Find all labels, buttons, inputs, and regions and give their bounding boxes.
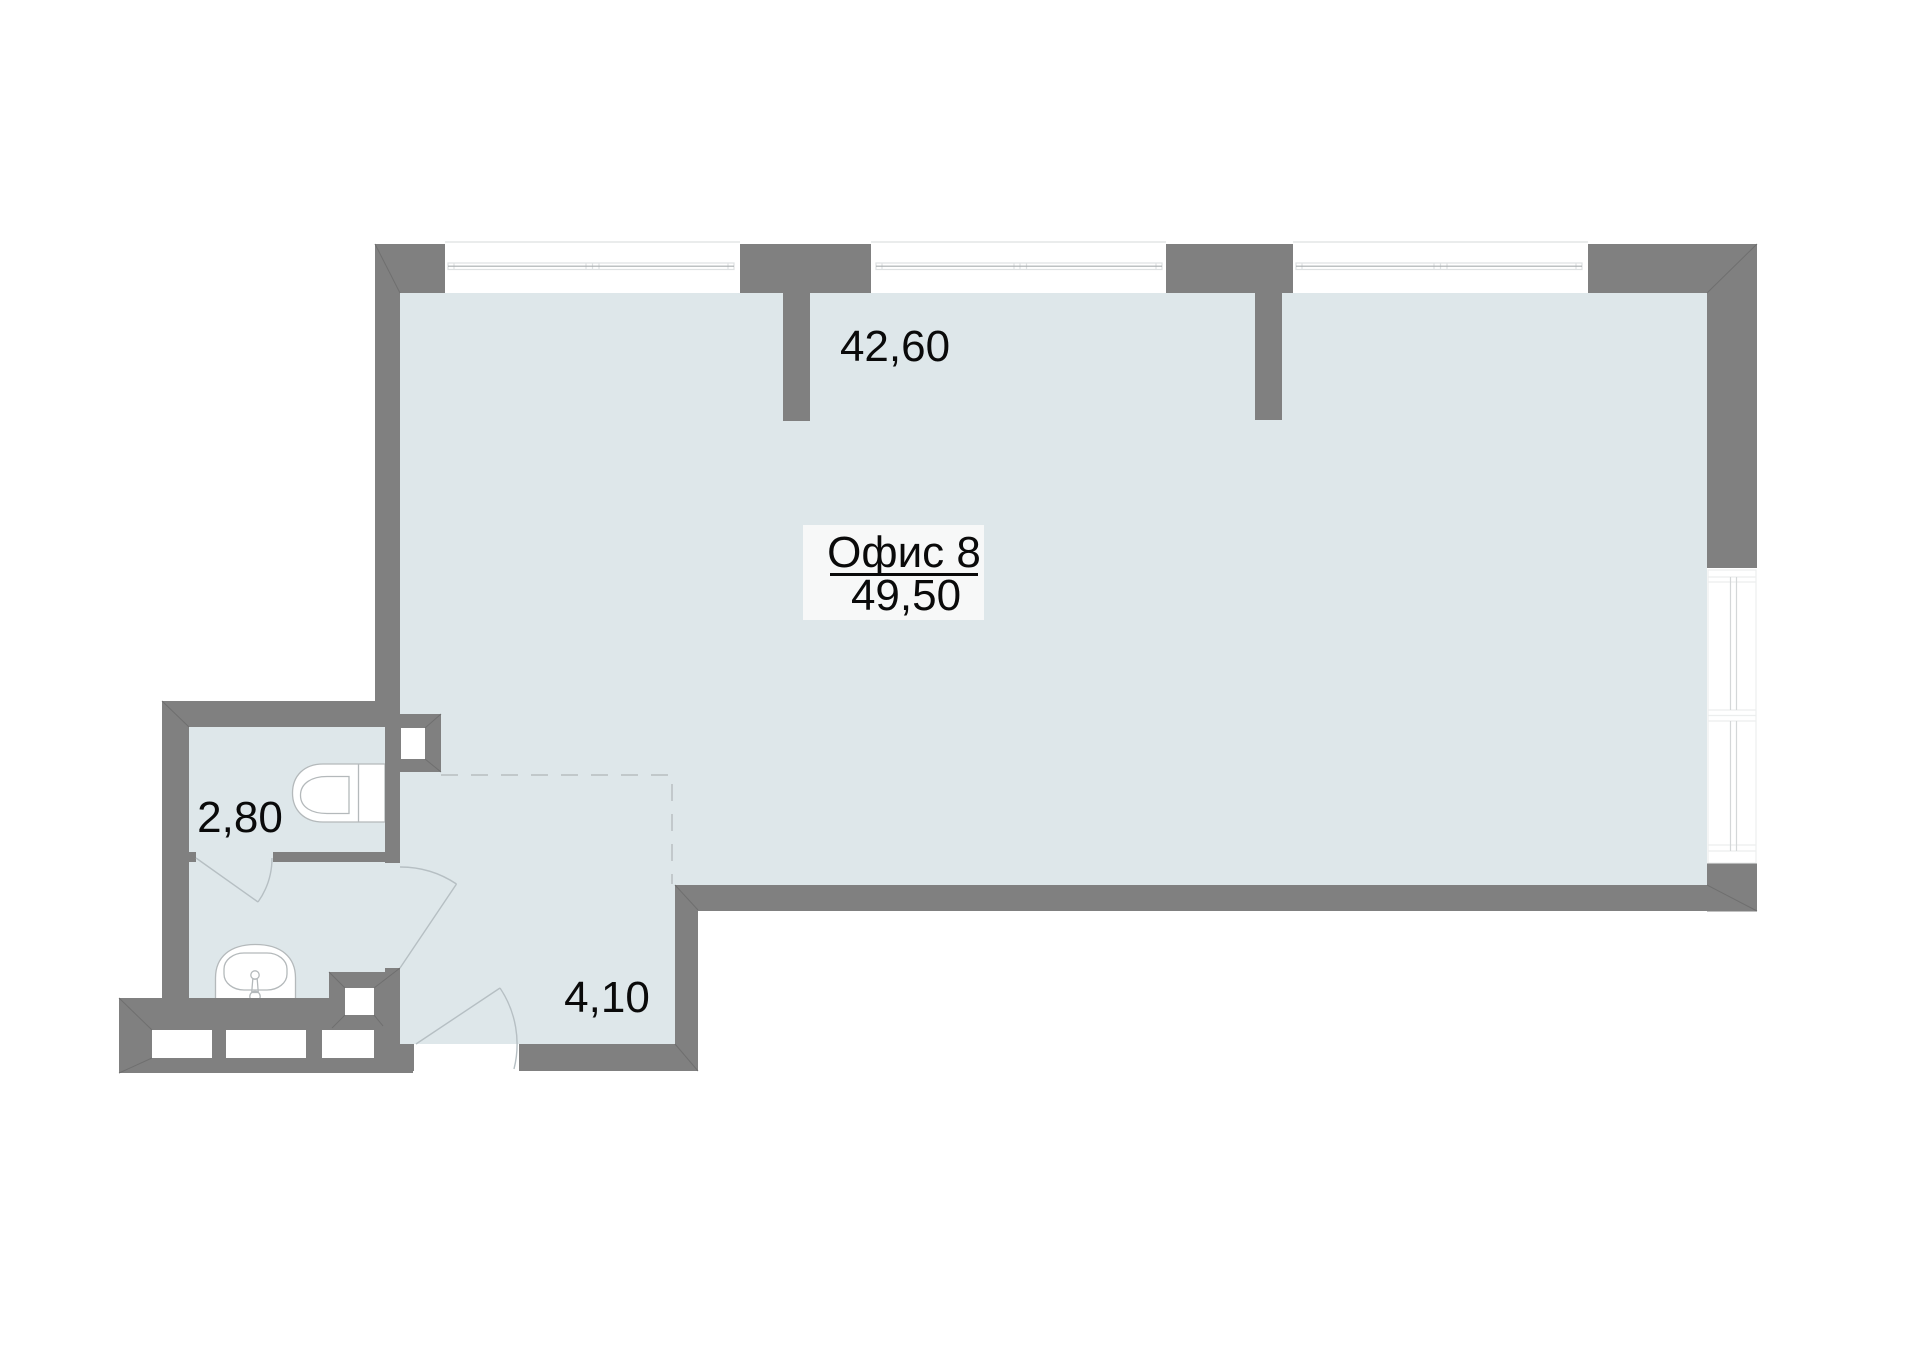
svg-text:2,80: 2,80 [197, 793, 283, 842]
svg-text:42,60: 42,60 [840, 322, 950, 371]
svg-text:4,10: 4,10 [564, 973, 650, 1022]
svg-text:49,50: 49,50 [851, 571, 961, 620]
svg-text:Офис 8: Офис 8 [827, 528, 981, 577]
